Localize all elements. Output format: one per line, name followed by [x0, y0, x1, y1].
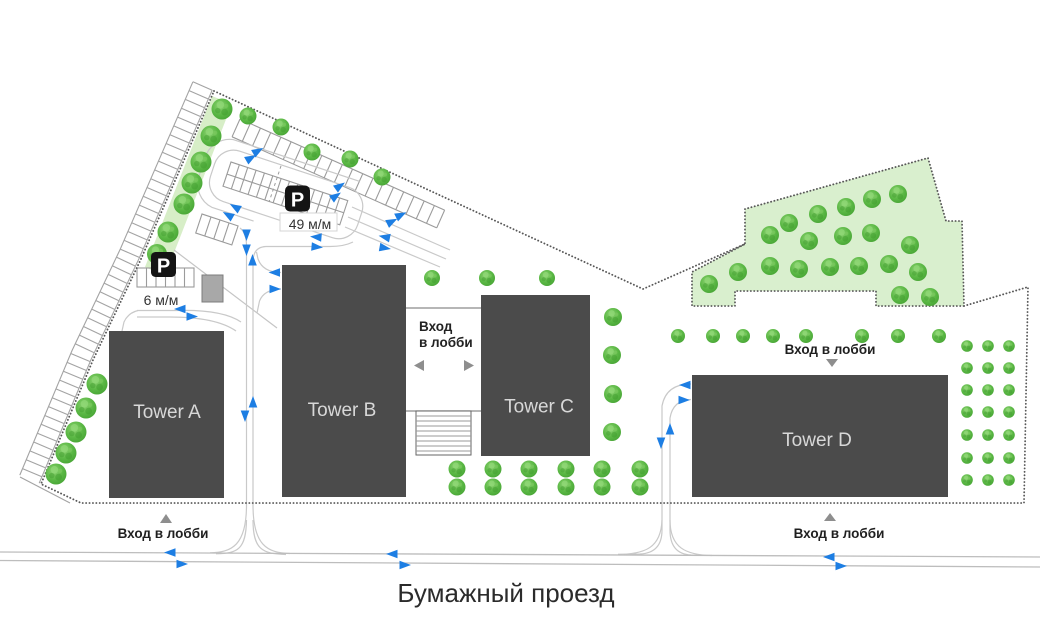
- svg-text:Tower D: Tower D: [782, 430, 852, 451]
- svg-text:Бумажный проезд: Бумажный проезд: [397, 578, 614, 608]
- svg-text:Tower B: Tower B: [308, 400, 377, 421]
- svg-text:6 м/м: 6 м/м: [144, 292, 179, 308]
- svg-text:P: P: [157, 256, 170, 278]
- svg-text:Вход в лобби: Вход в лобби: [785, 342, 876, 357]
- svg-text:Tower C: Tower C: [504, 397, 574, 418]
- svg-text:Вход: Вход: [419, 319, 453, 334]
- svg-text:P: P: [291, 190, 304, 212]
- svg-text:49 м/м: 49 м/м: [289, 216, 332, 232]
- svg-text:Вход в лобби: Вход в лобби: [794, 526, 885, 541]
- svg-text:Tower A: Tower A: [133, 402, 201, 423]
- svg-text:в лобби: в лобби: [419, 335, 473, 350]
- svg-text:Вход в лобби: Вход в лобби: [118, 526, 209, 541]
